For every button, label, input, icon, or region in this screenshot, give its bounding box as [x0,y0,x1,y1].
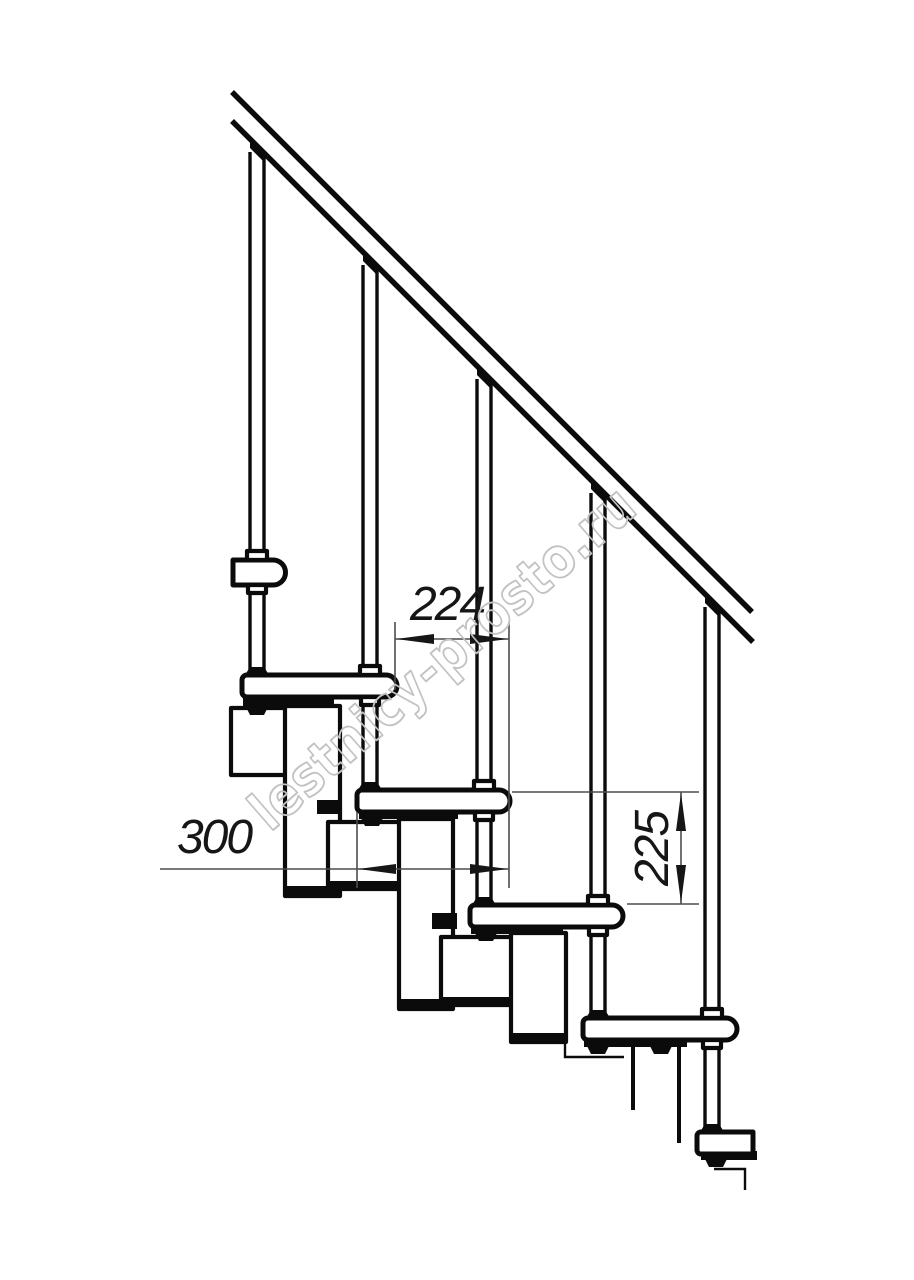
collar-above-tread4 [702,1009,722,1018]
arrow-300-right [470,864,508,874]
collar-below-tread3 [589,927,607,935]
tread-4 [583,1018,737,1040]
dim-label-tread-depth: 300 [177,811,253,864]
module-bridge-2 [441,937,518,1005]
module-bridge-5-partial [714,1169,745,1190]
collar-above-tread0 [247,551,267,560]
collar-below-tread2 [475,812,493,820]
watermark-text: lestnicy-prosto.ru [237,473,649,843]
module-bridge-1-base [330,881,403,889]
baluster-5 [705,595,719,1132]
collar-above-tread3 [588,896,608,905]
staircase-drawing: 224 300 225 lestnicy-prosto.ru [0,0,914,1280]
module-vertical-3 [511,933,566,1042]
collar-below-tread4 [703,1040,721,1048]
module-foot-5 [705,1159,727,1167]
tread-0 [233,560,286,585]
tread-3 [470,905,623,927]
module-foot-4a [587,1046,609,1054]
module-vertical-3-base [511,1033,566,1042]
dim-label-step-rise: 225 [626,810,679,887]
drawing-page: 224 300 225 lestnicy-prosto.ru [0,0,914,1280]
module-bridge-1 [328,822,405,889]
module-foot-4b [650,1046,672,1054]
module-junction-2 [432,913,457,929]
collar-below-tread0 [248,585,266,593]
tread-5 [697,1132,753,1154]
tread-2 [357,790,510,812]
module-bridge-2-base [443,997,511,1005]
collar-above-tread2 [474,781,494,790]
